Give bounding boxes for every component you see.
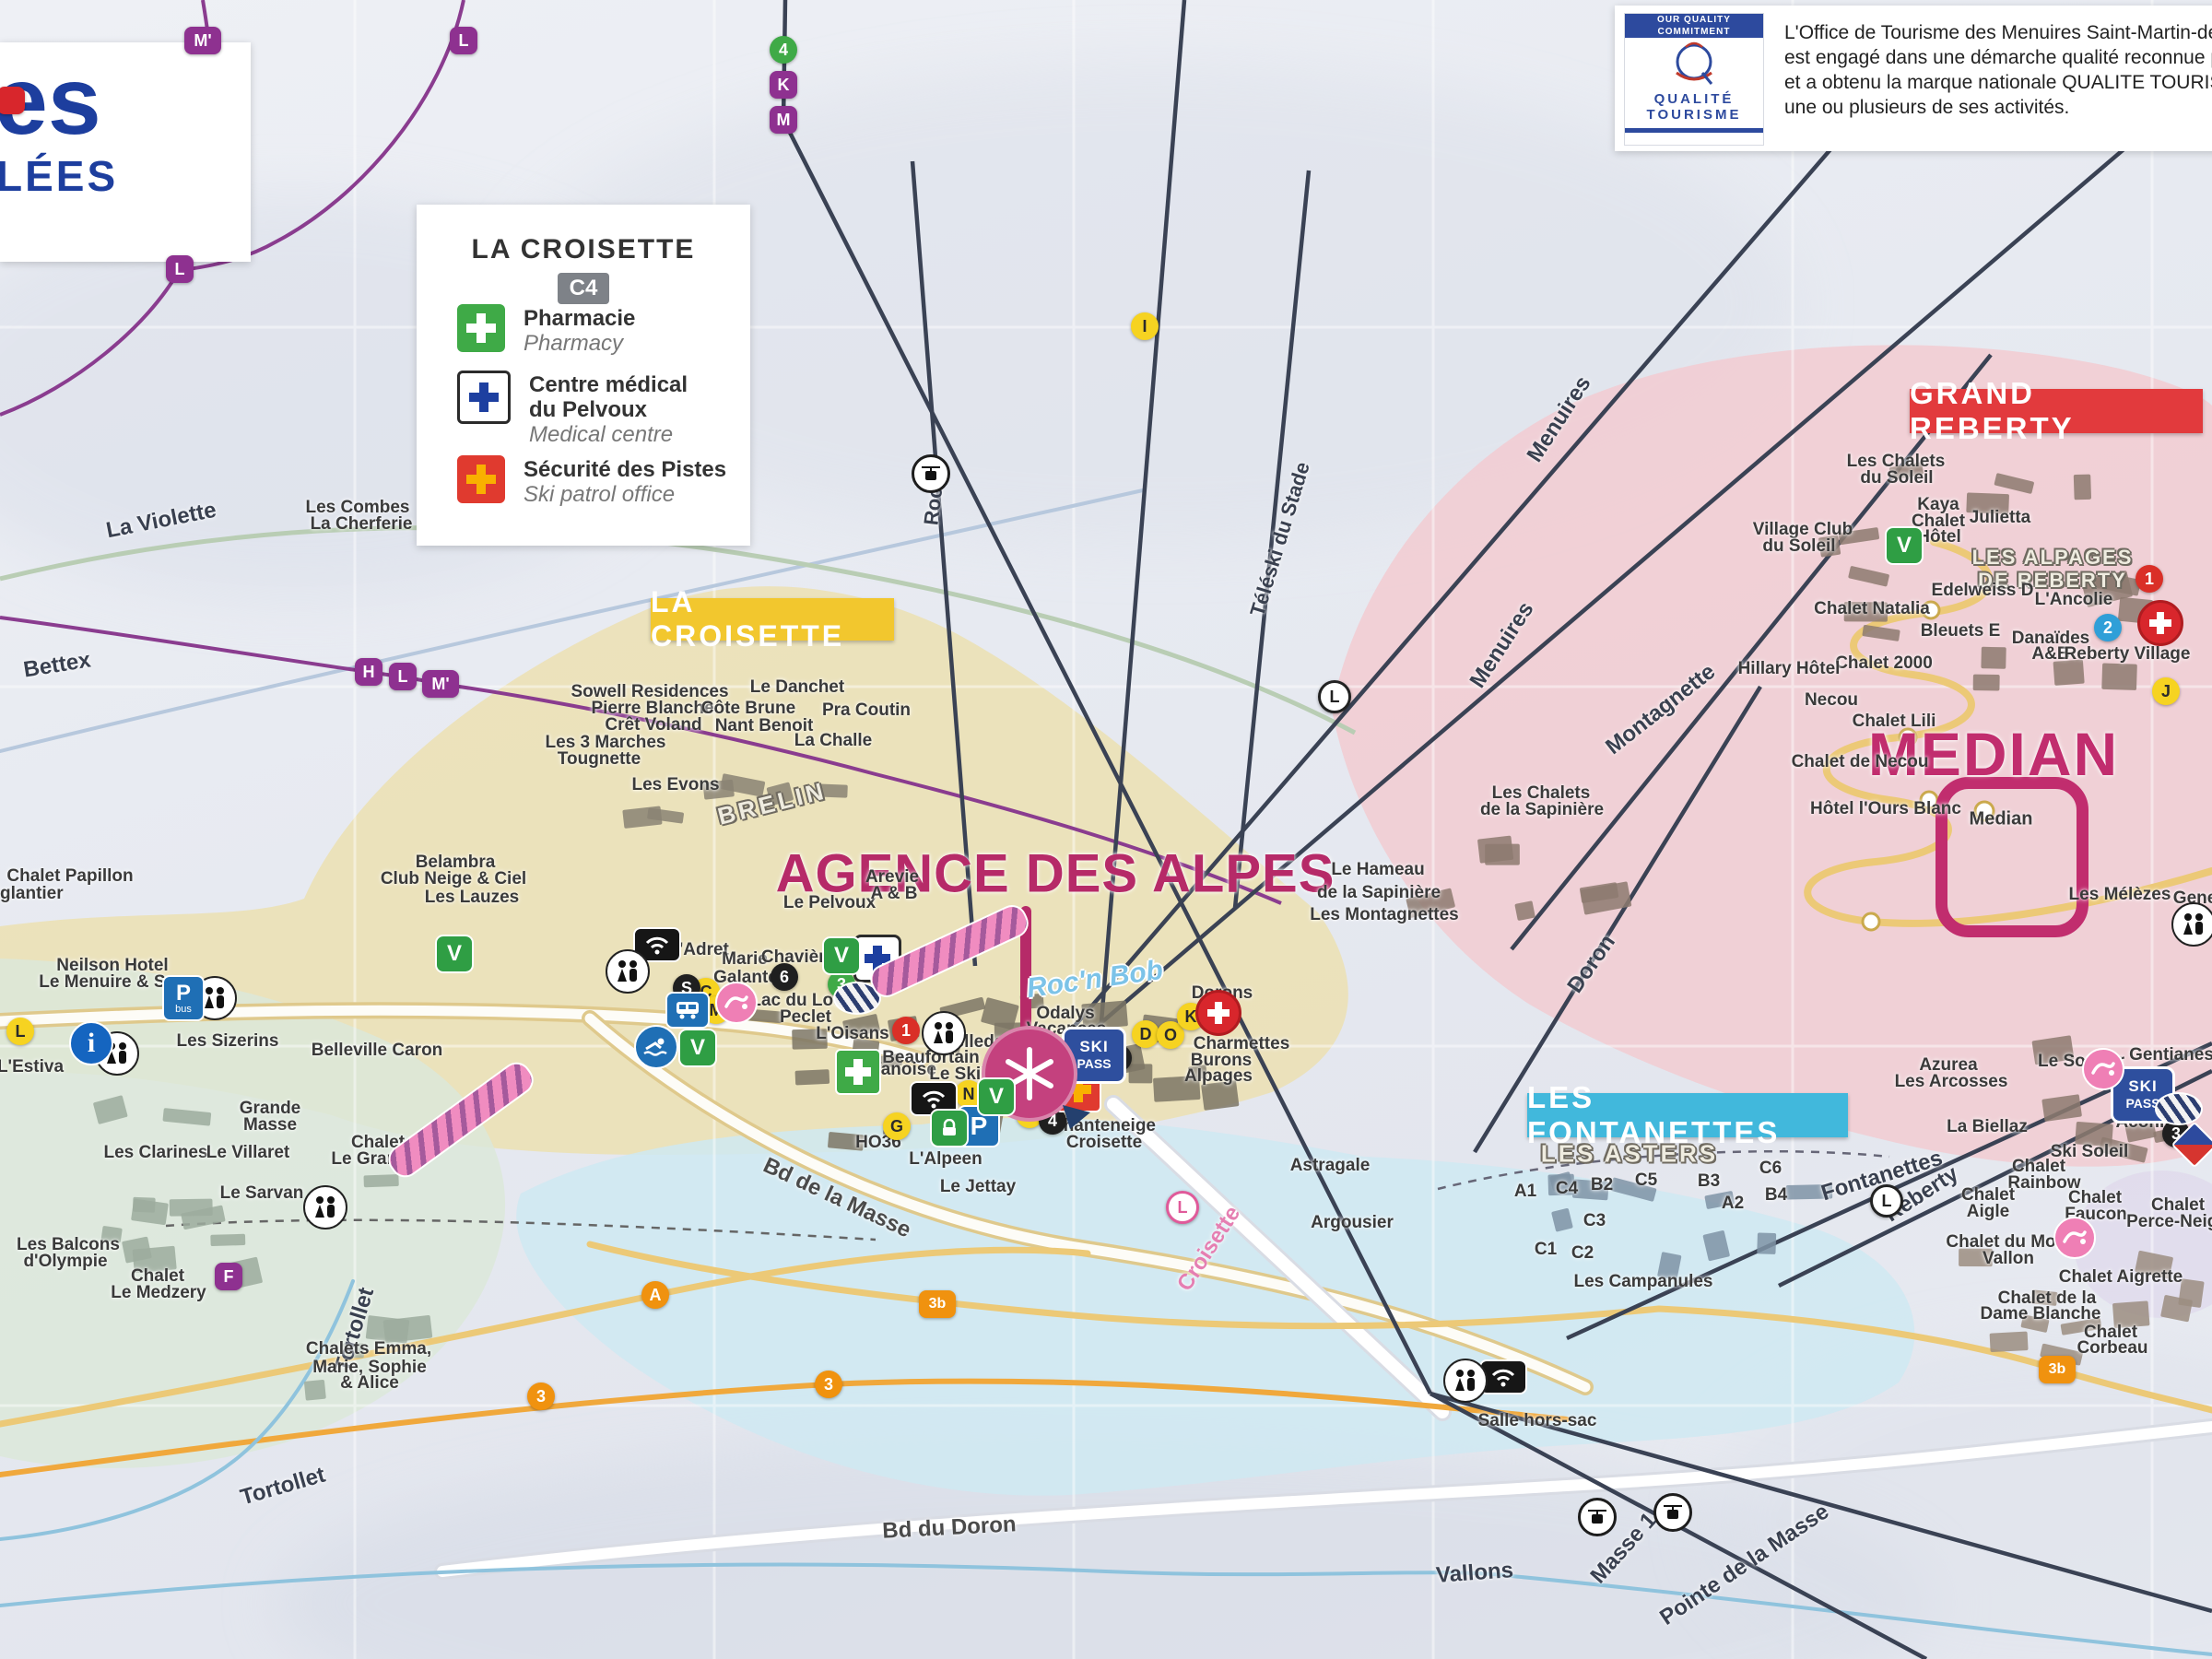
lift-badge: 2 [2094, 614, 2122, 641]
lift-badge: H [355, 658, 382, 686]
lift-badge: F [215, 1263, 242, 1290]
greenlock-icon [930, 1109, 969, 1147]
diamond-icon [2178, 1128, 2211, 1161]
place-label: du Soleil [1762, 536, 1835, 557]
place-label: Les Sizerins [177, 1031, 279, 1052]
place-label: Les Lauzes [425, 888, 519, 908]
lift-badge: L [1318, 680, 1351, 713]
greenv-icon: V [977, 1077, 1016, 1116]
lift-badge: 3b [2039, 1356, 2076, 1383]
sector-banner: GRAND REBERTY [1910, 389, 2203, 433]
tourisme-word: TOURISME [1647, 107, 1742, 123]
lift-badge: M' [422, 670, 459, 698]
place-label: Corbeau [2077, 1338, 2147, 1359]
place-label: Bleuets E [1921, 621, 2001, 641]
place-label: Hôtel [1917, 527, 1961, 547]
place-label: Le Pelvoux [783, 893, 876, 913]
lift-badge: G [883, 1112, 911, 1140]
place-label: A1 [1514, 1182, 1536, 1202]
pharmacy-icon [835, 1049, 881, 1095]
place-label: La Biellaz [1947, 1117, 2028, 1137]
lift-badge: D [1132, 1020, 1159, 1048]
place-label: C1 [1535, 1240, 1557, 1260]
pinkcircle-icon [715, 982, 758, 1024]
place-label: & Alice [340, 1373, 399, 1394]
place-label: L'Alpeen [909, 1149, 982, 1170]
family-icon [1443, 1359, 1488, 1403]
place-label: C3 [1583, 1211, 1606, 1231]
map-artwork [0, 0, 2212, 1659]
legend-label-en: Ski patrol office [524, 482, 675, 507]
legend-label: Sécurité des Pistes [524, 457, 726, 482]
place-label: d'Olympie [23, 1252, 107, 1272]
place-label: de la Sapinière [1317, 883, 1441, 903]
swim-icon [634, 1025, 678, 1069]
lift-badge: 1 [892, 1017, 920, 1044]
place-label: C4 [1556, 1179, 1578, 1199]
place-label: Les Montagnettes [1310, 905, 1459, 925]
place-label: Chalets Emma, [306, 1339, 431, 1359]
lift-badge: L [389, 663, 417, 690]
place-label: Reberty Village [2065, 644, 2191, 665]
place-label: L'Oisans [816, 1024, 889, 1044]
place-label: Chalet Aigrette [2059, 1267, 2183, 1288]
place-label: C5 [1635, 1171, 1657, 1191]
gondola-icon [912, 454, 950, 493]
legend-label: Centre médical [529, 372, 688, 397]
place-label: Le Villaret [206, 1143, 289, 1163]
lift-badge: L [1870, 1184, 1903, 1218]
family-icon [2171, 902, 2212, 947]
place-label: Églantier [0, 884, 64, 904]
place-label: A & B [870, 884, 917, 904]
sector-banner: LA CROISETTE [651, 598, 894, 641]
pinkcircle-icon [2082, 1048, 2124, 1090]
qualite-tourisme-logo: OUR QUALITY COMMITMENT QUALITÉ TOURISME [1624, 13, 1764, 146]
grid-reference-badge: C4 [558, 273, 609, 304]
stripes-icon [2155, 1092, 2203, 1125]
place-label: L'Ancolie [2035, 590, 2113, 610]
place-label: C2 [1571, 1243, 1594, 1264]
place-label: Croisette [1066, 1133, 1142, 1153]
gondola-icon [1653, 1493, 1692, 1532]
place-label: Chalet Lili [1853, 712, 1936, 732]
place-label: Tougnette [558, 749, 641, 770]
place-label: C6 [1759, 1159, 1782, 1179]
place-label: B3 [1698, 1171, 1720, 1192]
secucircle-icon [1195, 990, 1241, 1036]
place-label: Masse [243, 1115, 297, 1135]
place-label: Les Mélèzes [2069, 885, 2171, 905]
secucircle-icon [2137, 600, 2183, 646]
gondola-icon [1578, 1498, 1617, 1536]
place-label: Chalet Natalia [1814, 599, 1930, 619]
place-label: Julietta [1970, 508, 2031, 528]
place-label: Vallons [1435, 1558, 1514, 1589]
lift-badge: L [1166, 1191, 1199, 1224]
legend-item-medical: Centre médical du Pelvoux Medical centre [457, 371, 688, 447]
legend-item-ski-patrol: Sécurité des Pistes Ski patrol office [457, 455, 726, 507]
lift-badge: L [166, 255, 194, 283]
place-label: B2 [1591, 1175, 1613, 1195]
legend-title: LA CROISETTE [417, 234, 750, 265]
place-label: B4 [1765, 1185, 1787, 1206]
place-label: Chalet de Necou [1792, 752, 1929, 772]
place-label: Les Clarines [104, 1143, 208, 1163]
place-label: LES ASTERS [1541, 1140, 1718, 1169]
info-icon: i [69, 1021, 113, 1065]
place-label: Hillary Hôtel [1738, 659, 1841, 679]
place-label: Club Neige & Ciel [381, 869, 526, 889]
lift-badge: M [770, 106, 797, 134]
place-label: Astragale [1290, 1156, 1371, 1176]
place-label: de la Sapinière [1480, 800, 1604, 820]
place-label: Le Hameau [1331, 860, 1424, 880]
lift-badge: 1 [2136, 565, 2163, 593]
place-label: Pra Coutin [822, 700, 911, 721]
lift-badge [0, 87, 25, 114]
legend-label-en: Pharmacy [524, 331, 623, 356]
pharmacy-icon [457, 304, 505, 352]
place-label: A2 [1722, 1194, 1744, 1214]
lift-badge: J [2152, 677, 2180, 705]
place-label: Le Danchet [750, 677, 844, 698]
place-label: La Challe [794, 731, 872, 751]
greenv-icon: V [678, 1029, 717, 1067]
legend-panel: LA CROISETTE C4 Pharmacie Pharmacy Centr… [417, 205, 750, 546]
lift-badge: L [450, 27, 477, 54]
legend-label: Pharmacie [524, 306, 635, 331]
place-label: Perce-Neige [2126, 1212, 2212, 1232]
place-label: Hôtel l'Ours Blanc [1810, 799, 1961, 819]
place-label: Vallon [1983, 1249, 2034, 1269]
ski-resort-map: es LÉES LA CROISETTE C4 Pharmacie Pharma… [0, 0, 2212, 1659]
lift-badge: M' [184, 27, 221, 54]
lift-badge: 4 [770, 36, 797, 64]
place-label: du Soleil [1860, 468, 1933, 488]
lift-badge: I [1131, 312, 1159, 340]
place-label: Argousier [1311, 1213, 1394, 1233]
place-label: Median [1970, 809, 2033, 830]
legend-item-pharmacy: Pharmacie Pharmacy [457, 304, 635, 356]
place-label: Edelweiss D [1932, 581, 2034, 601]
resort-logo: es LÉES [0, 42, 251, 262]
qualite-tourisme-emblem-icon [1665, 38, 1723, 91]
quality-statement: L'Office de Tourisme des Menuires Saint-… [1764, 6, 2212, 151]
place-label: La Cherferie [311, 514, 413, 535]
place-label: Chalet 2000 [1835, 653, 1933, 674]
place-label: Le Medzery [111, 1283, 206, 1303]
place-label: Les Arcosses [1895, 1072, 2008, 1092]
place-label: Les Campanules [1574, 1272, 1713, 1292]
lift-badge: 3 [527, 1382, 555, 1410]
resort-logo-text: es [0, 55, 251, 147]
lift-badge: 3 [815, 1371, 842, 1398]
pinkcircle-icon [2053, 1217, 2096, 1259]
place-label: Le Jettay [940, 1177, 1016, 1197]
family-icon [606, 949, 650, 994]
place-label: Dame Blanche [1981, 1304, 2101, 1324]
quality-tourism-panel: OUR QUALITY COMMITMENT QUALITÉ TOURISME … [1615, 6, 2212, 151]
parkingbus-icon: Pbus [162, 975, 205, 1021]
ski-patrol-icon [457, 455, 505, 503]
place-label: Aigle [1967, 1202, 2009, 1222]
qualite-word: QUALITÉ [1654, 91, 1735, 107]
place-label: Salle hors-sac [1478, 1411, 1597, 1431]
sector-banner: LES FONTANETTES [1527, 1093, 1848, 1137]
legend-label: du Pelvoux [529, 397, 647, 422]
place-label: Necou [1805, 690, 1858, 711]
greenv-icon: V [822, 936, 861, 975]
legend-label-en: Medical centre [529, 422, 673, 447]
bus-icon [665, 992, 710, 1029]
family-icon [922, 1011, 966, 1055]
resort-logo-subtext: LÉES [0, 151, 251, 201]
quality-commitment-banner: OUR QUALITY COMMITMENT [1625, 14, 1763, 38]
greenv-icon: V [435, 935, 474, 973]
place-label: Les Evons [631, 775, 719, 795]
lift-badge: 3b [919, 1290, 956, 1318]
place-label: L'Estiva [0, 1057, 64, 1077]
place-label: Belleville Caron [312, 1041, 443, 1061]
greenv-icon: V [1885, 526, 1924, 565]
place-label: Alpages [1184, 1066, 1253, 1087]
place-label: Le Sarvan [220, 1183, 304, 1204]
medical-centre-icon [457, 371, 511, 424]
lift-badge: K [770, 71, 797, 99]
lift-badge: L [6, 1018, 34, 1045]
family-icon [303, 1185, 347, 1230]
place-label: LES ALPAGES [1972, 546, 2134, 570]
lift-badge: A [641, 1281, 669, 1309]
place-label: Gentianes [2129, 1045, 2212, 1065]
lift-badge: 6 [771, 963, 798, 991]
